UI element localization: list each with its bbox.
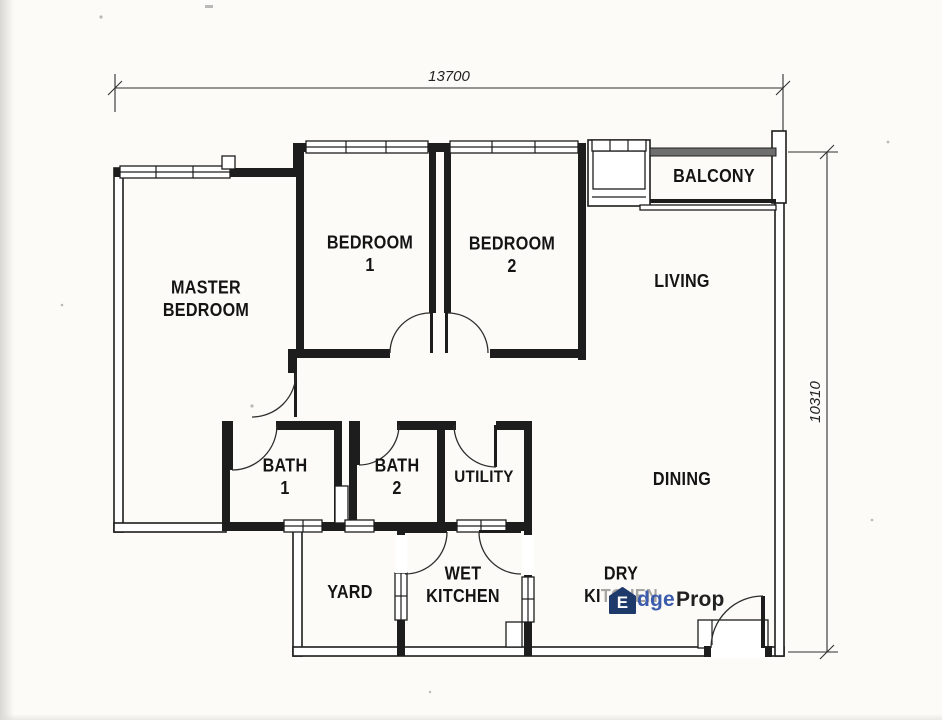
room-label-balcony: BALCONY [673, 165, 755, 187]
bedroom1-door-swing [390, 313, 430, 353]
window-yard-wall [395, 573, 407, 620]
window-bath1 [284, 520, 322, 532]
room-label-dining: DINING [653, 468, 711, 490]
utility-door-swing [454, 425, 496, 467]
windows [120, 140, 646, 622]
balcony-railing [650, 148, 776, 156]
entrance-door-leaf [761, 596, 765, 648]
yard-door-leaf [405, 530, 447, 533]
room-label-bedroom-2: BEDROOM 2 [469, 233, 555, 278]
edgeprop-house-icon: E [609, 587, 636, 614]
dimension-height-label: 10310 [807, 380, 824, 422]
bedroom1-door-leaf [430, 313, 433, 353]
window-master [120, 166, 230, 178]
room-label-wet-kitchen: WET KITCHEN [426, 563, 500, 608]
window-bedroom1 [306, 141, 428, 153]
entrance-step [698, 620, 768, 648]
window-bath2 [345, 520, 374, 532]
bedroom2-door-swing [448, 313, 488, 353]
window-bedroom2 [450, 141, 578, 153]
floorplan-scan-page: 13700 10310 [0, 0, 942, 720]
bedroom2-door-leaf [445, 313, 448, 353]
interior-walls [114, 143, 586, 656]
wall-notch [222, 156, 235, 169]
dimension-width-label: 13700 [428, 68, 470, 85]
room-label-utility: UTILITY [454, 466, 513, 488]
edgeprop-watermark: E dge Prop [609, 586, 725, 614]
floor-plan-drawing: 13700 10310 [0, 0, 942, 720]
window-planter [592, 140, 646, 151]
bath2-door-leaf [357, 425, 360, 465]
utility-door-leaf [494, 425, 497, 467]
edgeprop-text-blue: dge [637, 588, 675, 612]
room-label-yard: YARD [327, 581, 372, 603]
svg-text:E: E [617, 593, 629, 612]
master-door-swing [252, 373, 296, 417]
room-label-bath-1: BATH 1 [263, 455, 308, 500]
wetkitchen-door-leaf [479, 530, 521, 533]
room-label-bedroom-1: BEDROOM 1 [327, 232, 413, 277]
edgeprop-text-dark: Prop [676, 588, 725, 612]
room-label-living: LIVING [654, 270, 710, 292]
room-label-master-bedroom: MASTER BEDROOM [163, 277, 249, 322]
dimension-top: 13700 [108, 68, 790, 136]
bath1-door-leaf [230, 425, 233, 470]
window-wetkitchen-wall [522, 577, 534, 622]
dimension-right: 10310 [788, 145, 838, 659]
balcony-sliding-door [640, 205, 776, 210]
room-label-bath-2: BATH 2 [375, 455, 420, 500]
